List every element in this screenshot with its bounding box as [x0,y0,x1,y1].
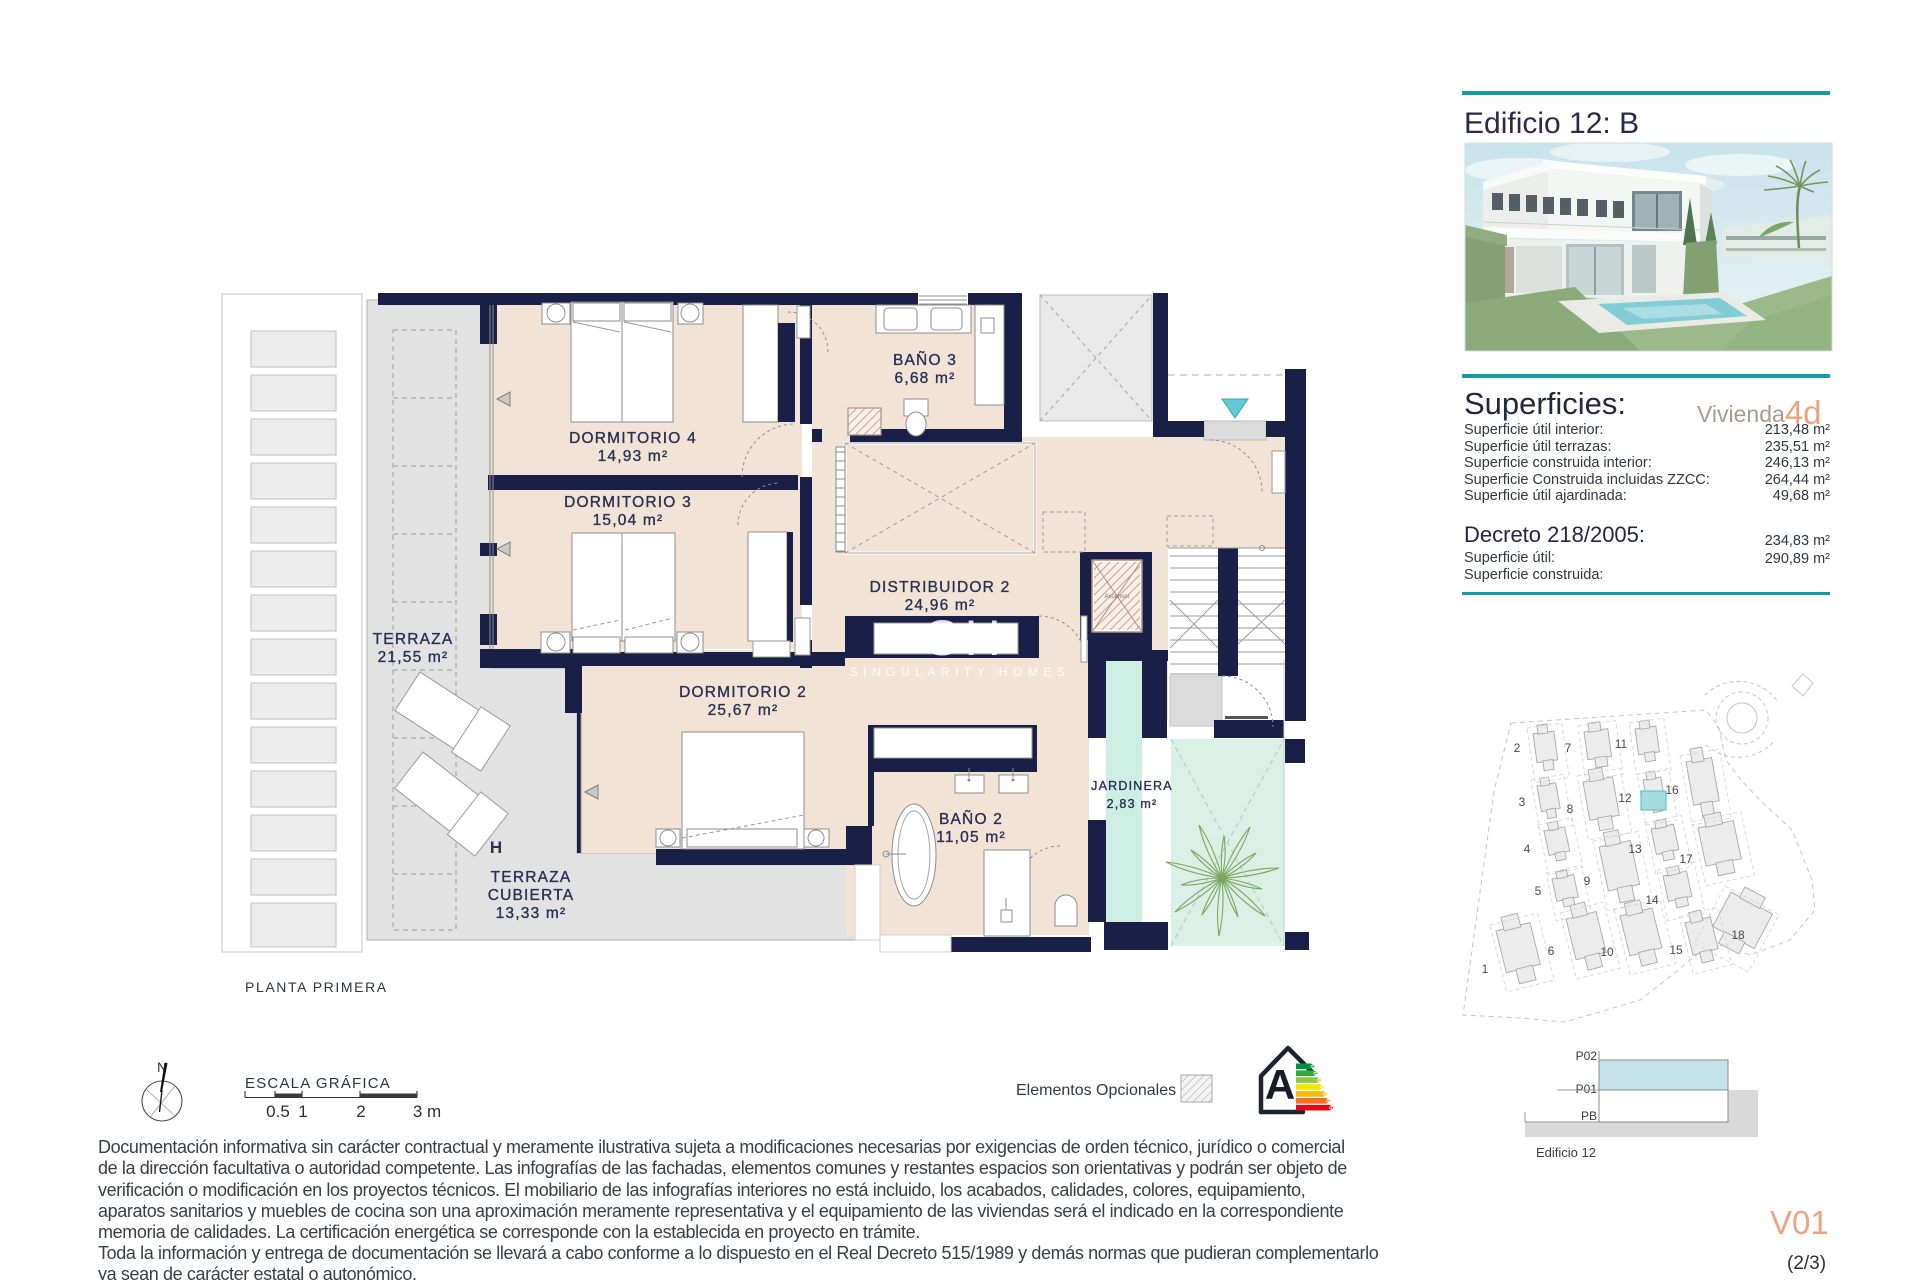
svg-text:2,83 m²: 2,83 m² [1107,797,1158,811]
svg-text:14,93 m²: 14,93 m² [598,448,669,465]
svg-text:13: 13 [1628,842,1642,856]
svg-text:Ascensor: Ascensor [1104,594,1129,600]
svg-text:TERRAZA: TERRAZA [373,631,454,648]
svg-text:P01: P01 [1576,1082,1598,1096]
svg-text:1: 1 [298,1102,307,1121]
svg-text:25,67 m²: 25,67 m² [708,702,779,719]
svg-text:14: 14 [1645,893,1659,907]
svg-text:6,68 m²: 6,68 m² [895,370,956,387]
svg-text:3: 3 [1519,795,1526,809]
svg-text:12: 12 [1618,791,1632,805]
svg-text:16: 16 [1665,783,1679,797]
svg-text:DORMITORIO 4: DORMITORIO 4 [569,430,697,447]
svg-text:TERRAZA: TERRAZA [491,869,572,886]
svg-text:24,96 m²: 24,96 m² [905,597,976,614]
svg-text:15: 15 [1669,943,1683,957]
svg-text:17: 17 [1679,852,1693,866]
svg-text:11: 11 [1615,737,1628,751]
svg-text:H: H [490,838,502,857]
svg-text:4: 4 [1524,842,1531,856]
svg-text:11,05 m²: 11,05 m² [936,829,1006,846]
svg-text:1: 1 [1482,962,1489,976]
svg-text:JARDINERA: JARDINERA [1091,779,1173,793]
svg-text:P02: P02 [1576,1049,1598,1063]
svg-text:9: 9 [1584,874,1591,888]
svg-text:2: 2 [1514,741,1521,755]
svg-text:18: 18 [1731,928,1745,942]
svg-text:DORMITORIO 3: DORMITORIO 3 [564,494,692,511]
svg-text:PB: PB [1581,1109,1597,1123]
svg-text:SH: SH [925,610,1006,666]
svg-text:8: 8 [1567,802,1574,816]
svg-text:5: 5 [1535,884,1542,898]
svg-text:3 m: 3 m [413,1102,441,1121]
svg-text:DORMITORIO 2: DORMITORIO 2 [679,684,807,701]
svg-text:A: A [1265,1061,1295,1108]
svg-text:6: 6 [1548,944,1555,958]
svg-text:BAÑO 2: BAÑO 2 [939,811,1003,828]
svg-text:13,33 m²: 13,33 m² [496,905,567,922]
svg-text:BAÑO 3: BAÑO 3 [893,352,957,369]
svg-text:15,04 m²: 15,04 m² [593,512,664,529]
svg-text:DISTRIBUIDOR 2: DISTRIBUIDOR 2 [870,579,1011,596]
svg-text:10: 10 [1600,945,1614,959]
svg-text:7: 7 [1565,741,1572,755]
svg-text:CUBIERTA: CUBIERTA [488,887,575,904]
svg-text:SINGULARITY HOMES: SINGULARITY HOMES [850,665,1071,679]
svg-text:21,55 m²: 21,55 m² [378,649,449,666]
svg-text:2: 2 [356,1102,365,1121]
svg-text:0.5: 0.5 [266,1102,290,1121]
